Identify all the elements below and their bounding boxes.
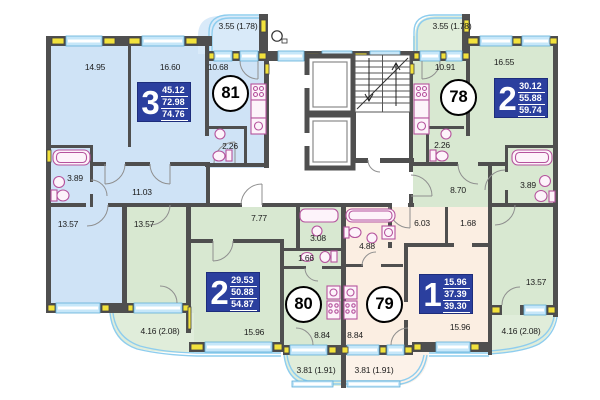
room-area-label: 8.84 xyxy=(314,330,330,340)
room-area-label: 16.55 xyxy=(494,57,514,67)
room-area-label: 11.03 xyxy=(132,187,152,197)
room-area-label: 8.70 xyxy=(450,185,466,195)
room-area-label: 2.26 xyxy=(222,141,238,151)
balcony-area-label: 3.55 (1.78) xyxy=(219,21,258,31)
room-area-label: 2.26 xyxy=(434,140,450,150)
unit-81-total-with-balcony: 74.76 xyxy=(161,109,188,121)
elevator-shafts xyxy=(303,56,353,168)
unit-80-area-box: 2 29.53 50.88 54.87 xyxy=(206,272,260,312)
unit-79-total-with-balcony: 39.30 xyxy=(443,301,470,313)
unit-80-total-area: 50.88 xyxy=(230,287,257,299)
unit-78-total-with-balcony: 59.74 xyxy=(518,105,545,117)
room-area-label: 14.95 xyxy=(85,62,105,72)
room-area-label: 6.03 xyxy=(414,218,430,228)
balcony-area-label: 4.16 (2.08) xyxy=(141,326,180,336)
room-area-label: 3.08 xyxy=(310,233,326,243)
room-area-label: 3.89 xyxy=(520,180,536,190)
unit-79-rooms-count: 1 xyxy=(422,276,443,312)
floor-plan: 14.95 16.60 10.68 3.55 (1.78) 2.26 3.89 … xyxy=(0,0,600,400)
room-area-label: 7.77 xyxy=(251,213,267,223)
unit-81-area-box: 3 45.12 72.98 74.76 xyxy=(137,82,191,122)
unit-79-area-box: 1 15.96 37.39 39.30 xyxy=(419,274,473,314)
unit-78-rooms-count: 2 xyxy=(497,80,518,116)
unit-79-total-area: 37.39 xyxy=(443,289,470,301)
unit-80-total-with-balcony: 54.87 xyxy=(230,299,257,311)
staircase xyxy=(355,55,410,112)
unit-78-total-area: 55.88 xyxy=(518,93,545,105)
unit-80-rooms-count: 2 xyxy=(209,274,230,310)
room-area-label: 15.96 xyxy=(450,322,470,332)
unit-81-number-badge: 81 xyxy=(212,75,249,112)
balcony-area-label: 3.81 (1.91) xyxy=(355,365,394,375)
unit-80-number-badge: 80 xyxy=(285,286,322,323)
room-area-label: 1.68 xyxy=(460,218,476,228)
unit-81-rooms-count: 3 xyxy=(140,84,161,120)
unit-78-area-box: 2 30.12 55.88 59.74 xyxy=(494,78,548,118)
unit-79-living-area: 15.96 xyxy=(443,277,470,289)
room-area-label: 15.96 xyxy=(244,327,264,337)
room-area-label: 16.60 xyxy=(160,62,180,72)
trash-chute-icon xyxy=(272,31,287,43)
unit-81-living-area: 45.12 xyxy=(161,85,188,97)
apartment-regions xyxy=(50,16,556,386)
unit-78-number-badge: 78 xyxy=(440,79,477,116)
room-area-label: 10.68 xyxy=(208,62,228,72)
balcony-area-label: 3.55 (1.78) xyxy=(433,21,472,31)
unit-81-total-area: 72.98 xyxy=(161,97,188,109)
room-area-label: 13.57 xyxy=(134,219,154,229)
unit-80-living-area: 29.53 xyxy=(230,275,257,287)
room-area-label: 8.84 xyxy=(347,330,363,340)
room-area-label: 1.66 xyxy=(298,253,314,263)
unit-78-living-area: 30.12 xyxy=(518,81,545,93)
room-area-label: 13.57 xyxy=(58,219,78,229)
room-area-label: 4.88 xyxy=(359,241,375,251)
room-area-label: 3.89 xyxy=(67,173,83,183)
unit-79-number-badge: 79 xyxy=(366,286,403,323)
balcony-area-label: 3.81 (1.91) xyxy=(297,365,336,375)
balcony-area-label: 4.16 (2.08) xyxy=(502,326,541,336)
room-area-label: 13.57 xyxy=(526,277,546,287)
room-area-label: 10.91 xyxy=(435,62,455,72)
